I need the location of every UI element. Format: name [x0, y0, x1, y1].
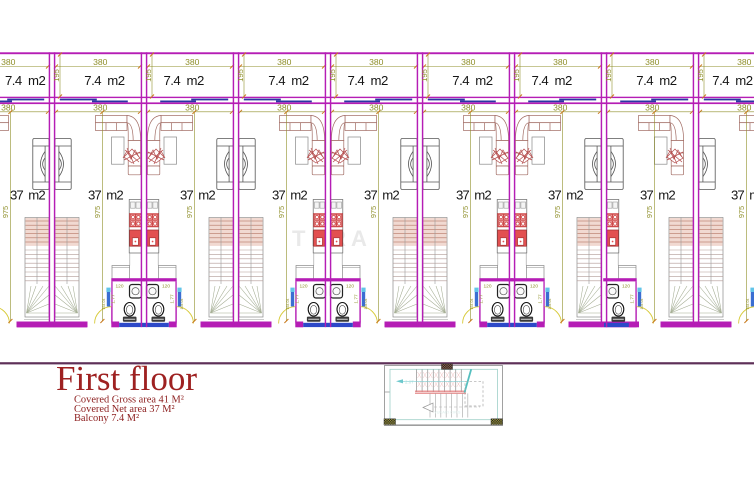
- svg-text:120: 120: [346, 284, 354, 290]
- svg-text:Balcony 7.4 M²: Balcony 7.4 M²: [74, 413, 139, 424]
- svg-text:195: 195: [52, 69, 61, 82]
- svg-text:164.04: 164.04: [180, 299, 184, 310]
- svg-text:37 m2: 37 m2: [272, 188, 308, 203]
- svg-text:164.04: 164.04: [286, 299, 290, 310]
- svg-text:37 m2: 37 m2: [456, 188, 492, 203]
- svg-text:975: 975: [737, 206, 746, 218]
- svg-text:7.4 m2: 7.4 m2: [452, 73, 493, 88]
- svg-text:380: 380: [369, 103, 384, 113]
- svg-text:380: 380: [461, 57, 476, 67]
- svg-text:120: 120: [162, 284, 170, 290]
- svg-text:1.77: 1.77: [354, 294, 360, 304]
- svg-text:37 m2: 37 m2: [548, 188, 584, 203]
- svg-text:2.07: 2.07: [405, 379, 414, 384]
- svg-text:7.4 m2: 7.4 m2: [636, 73, 677, 88]
- svg-text:975: 975: [369, 206, 378, 218]
- svg-text:380: 380: [1, 103, 16, 113]
- svg-text:975: 975: [185, 206, 194, 218]
- svg-text:37 m2: 37 m2: [731, 188, 754, 203]
- svg-text:380: 380: [461, 103, 476, 113]
- svg-text:975: 975: [645, 206, 654, 218]
- svg-text:7.4 m2: 7.4 m2: [5, 73, 46, 88]
- svg-text:195: 195: [236, 69, 245, 82]
- svg-text:37 m2: 37 m2: [640, 188, 676, 203]
- svg-text:37 m2: 37 m2: [364, 188, 400, 203]
- svg-text:975: 975: [461, 206, 470, 218]
- svg-text:164.04: 164.04: [470, 299, 474, 310]
- svg-text:37 m2: 37 m2: [88, 188, 124, 203]
- svg-text:1.77: 1.77: [479, 294, 485, 304]
- svg-text:1.77: 1.77: [630, 294, 636, 304]
- svg-text:195: 195: [512, 69, 521, 82]
- svg-text:7.4 m2: 7.4 m2: [712, 73, 753, 88]
- svg-text:380: 380: [277, 57, 292, 67]
- svg-text:7.4 m2: 7.4 m2: [84, 73, 125, 88]
- svg-text:380: 380: [185, 103, 200, 113]
- svg-text:975: 975: [93, 206, 102, 218]
- svg-text:120: 120: [622, 284, 630, 290]
- svg-text:380: 380: [737, 103, 752, 113]
- svg-text:164.04: 164.04: [548, 299, 552, 310]
- svg-text:164.04: 164.04: [364, 299, 368, 310]
- svg-text:37 m2: 37 m2: [180, 188, 216, 203]
- svg-text:7.4 m2: 7.4 m2: [532, 73, 573, 88]
- svg-text:164.04: 164.04: [746, 299, 750, 310]
- svg-text:195: 195: [144, 69, 153, 82]
- svg-text:975: 975: [1, 206, 10, 218]
- svg-text:37 m2: 37 m2: [10, 188, 46, 203]
- svg-text:120: 120: [530, 284, 538, 290]
- svg-text:380: 380: [737, 57, 752, 67]
- svg-text:7.4 m2: 7.4 m2: [164, 73, 205, 88]
- svg-text:975: 975: [277, 206, 286, 218]
- svg-text:7.4 m2: 7.4 m2: [348, 73, 389, 88]
- svg-text:380: 380: [1, 57, 16, 67]
- svg-text:120: 120: [484, 284, 492, 290]
- svg-text:First floor: First floor: [56, 359, 197, 398]
- svg-text:164.04: 164.04: [640, 299, 644, 310]
- svg-text:1.77: 1.77: [170, 294, 176, 304]
- svg-text:164.04: 164.04: [102, 299, 106, 310]
- svg-text:380: 380: [369, 57, 384, 67]
- svg-text:380: 380: [185, 57, 200, 67]
- svg-text:120: 120: [300, 284, 308, 290]
- svg-text:380: 380: [553, 103, 568, 113]
- svg-text:975: 975: [553, 206, 562, 218]
- svg-text:1.77: 1.77: [295, 294, 301, 304]
- svg-text:195: 195: [328, 69, 337, 82]
- svg-text:380: 380: [645, 103, 660, 113]
- svg-text:7.4 m2: 7.4 m2: [268, 73, 309, 88]
- svg-text:195: 195: [604, 69, 613, 82]
- svg-text:YUKARI CIKIS: YUKARI CIKIS: [434, 410, 461, 415]
- svg-text:195: 195: [696, 69, 705, 82]
- svg-text:380: 380: [93, 103, 108, 113]
- svg-text:1.77: 1.77: [111, 294, 117, 304]
- svg-text:120: 120: [116, 284, 124, 290]
- svg-text:380: 380: [93, 57, 108, 67]
- svg-text:380: 380: [645, 57, 660, 67]
- svg-text:380: 380: [277, 103, 292, 113]
- svg-text:380: 380: [553, 57, 568, 67]
- svg-text:1.77: 1.77: [538, 294, 544, 304]
- svg-text:195: 195: [420, 69, 429, 82]
